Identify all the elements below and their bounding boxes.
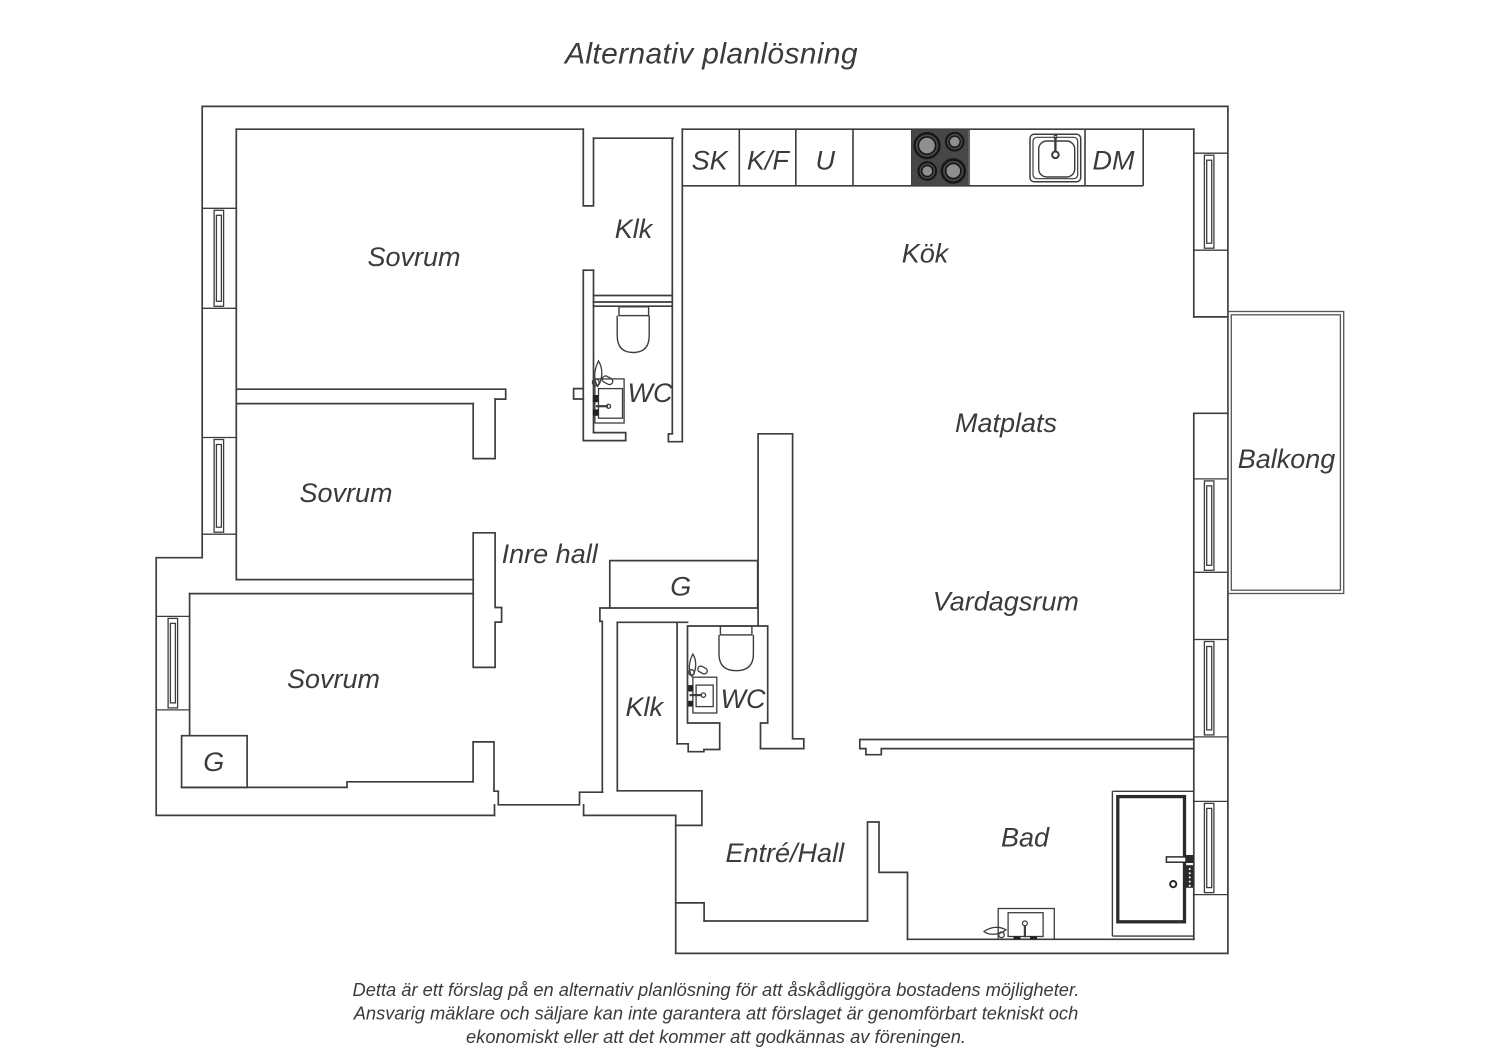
svg-text:G: G	[670, 572, 691, 602]
svg-text:Sovrum: Sovrum	[367, 242, 460, 272]
svg-text:Klk: Klk	[615, 214, 654, 244]
svg-text:Entré/Hall: Entré/Hall	[726, 838, 846, 868]
svg-text:Bad: Bad	[1001, 823, 1050, 853]
svg-text:Kök: Kök	[902, 239, 950, 269]
svg-text:Balkong: Balkong	[1238, 444, 1336, 474]
svg-text:Matplats: Matplats	[955, 408, 1057, 438]
svg-text:ekonomiskt eller att det komme: ekonomiskt eller att det kommer att godk…	[466, 1026, 966, 1047]
svg-text:SK: SK	[692, 146, 729, 176]
svg-text:Detta är ett förslag på en alt: Detta är ett förslag på en alternativ pl…	[353, 979, 1080, 1000]
svg-text:Inre hall: Inre hall	[502, 539, 599, 569]
svg-text:Sovrum: Sovrum	[299, 478, 392, 508]
svg-text:K/F: K/F	[747, 146, 791, 176]
svg-text:WC: WC	[628, 378, 673, 408]
svg-text:Ansvarig mäklare och säljare k: Ansvarig mäklare och säljare kan inte ga…	[353, 1003, 1079, 1024]
svg-text:Vardagsrum: Vardagsrum	[933, 587, 1079, 617]
svg-text:Klk: Klk	[626, 692, 665, 722]
svg-text:DM: DM	[1093, 146, 1135, 176]
svg-text:U: U	[815, 146, 835, 176]
svg-text:WC: WC	[721, 684, 766, 714]
svg-text:Alternativ planlösning: Alternativ planlösning	[563, 38, 858, 71]
svg-text:Sovrum: Sovrum	[287, 664, 380, 694]
svg-text:G: G	[203, 747, 224, 777]
